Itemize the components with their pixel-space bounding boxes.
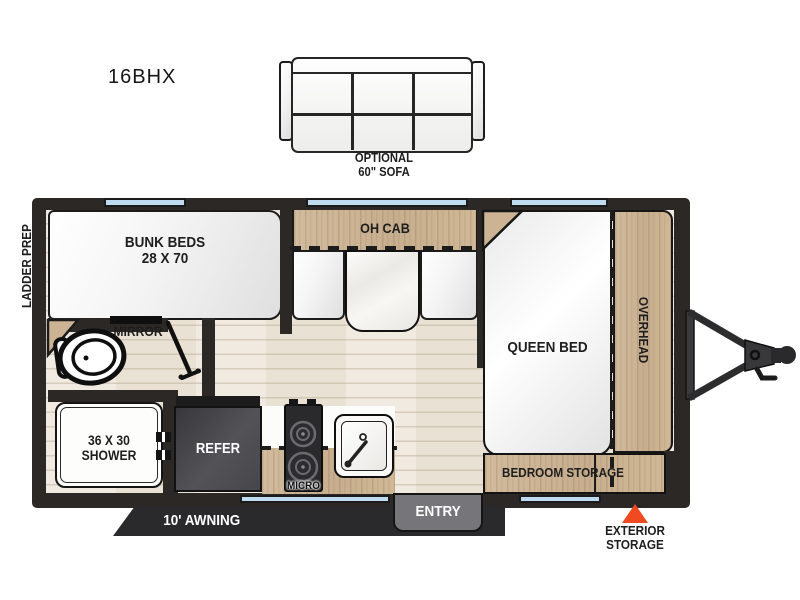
hitch-icon	[686, 311, 796, 399]
stove-knob-2	[307, 399, 316, 406]
entry-door: ENTRY	[393, 493, 483, 532]
oh-cab-dashline	[290, 246, 480, 250]
dinette-bench-right	[420, 250, 478, 320]
sofa-backrest	[293, 59, 471, 74]
window-bed-top	[510, 198, 608, 207]
shower-door-hinge-2	[156, 450, 171, 460]
overhead-label: OVERHEAD	[636, 281, 650, 380]
sink-basin	[341, 421, 387, 471]
stove	[284, 404, 323, 492]
entry-label: ENTRY	[415, 504, 460, 520]
queen-bed	[483, 210, 612, 456]
rv-floorplan-page: 16BHX OPTIONAL 60" SOFA LADDER PREP	[0, 0, 800, 600]
refer-label: REFER	[178, 442, 257, 458]
ladder-prep-label: LADDER PREP	[20, 217, 34, 316]
sofa-label: OPTIONAL 60" SOFA	[317, 152, 452, 179]
bedroom-storage-label: BEDROOM STORAGE	[491, 466, 635, 480]
window-dinette	[306, 198, 468, 207]
dinette-table	[345, 250, 420, 332]
bunk-beds-label: BUNK BEDS 28 X 70	[60, 235, 271, 267]
queen-bed-label: QUEEN BED	[489, 340, 605, 356]
mirror-label: MIRROR	[108, 325, 167, 340]
wall-dinette-bedroom-partition	[477, 210, 483, 368]
window-bedroom-bottom	[519, 495, 601, 503]
dinette-bench-left	[292, 250, 345, 320]
model-label: 16BHX	[108, 66, 198, 89]
shower-door-hinge-1	[156, 432, 171, 442]
wall-shower-top	[48, 390, 178, 402]
sofa-cushion-divider-2	[412, 74, 415, 150]
refer-shelf	[176, 396, 260, 406]
sink	[334, 414, 394, 478]
wall-bath-door-jamb	[202, 318, 215, 398]
sofa-arm-right	[471, 61, 485, 141]
exterior-storage-label: EXTERIOR STORAGE	[590, 524, 680, 552]
exterior-storage-marker	[622, 504, 648, 523]
micro-label: MICRO	[279, 481, 329, 493]
sofa-cushion-divider-1	[351, 74, 354, 150]
mirror-bar	[110, 316, 162, 324]
stove-knob-1	[289, 399, 298, 406]
window-kitchen-bottom	[240, 495, 390, 503]
sofa-top-view	[291, 57, 473, 153]
bed-overhead-dashline	[610, 210, 614, 494]
oh-cab-label: OH CAB	[301, 221, 468, 236]
shower-label: 36 X 30 SHOWER	[60, 434, 157, 463]
window-rear-bunk	[104, 198, 186, 207]
awning-label: 10' AWNING	[163, 513, 240, 529]
wall-bunk-right-partition	[280, 210, 292, 334]
sofa-cushion-row-divider	[293, 113, 471, 116]
